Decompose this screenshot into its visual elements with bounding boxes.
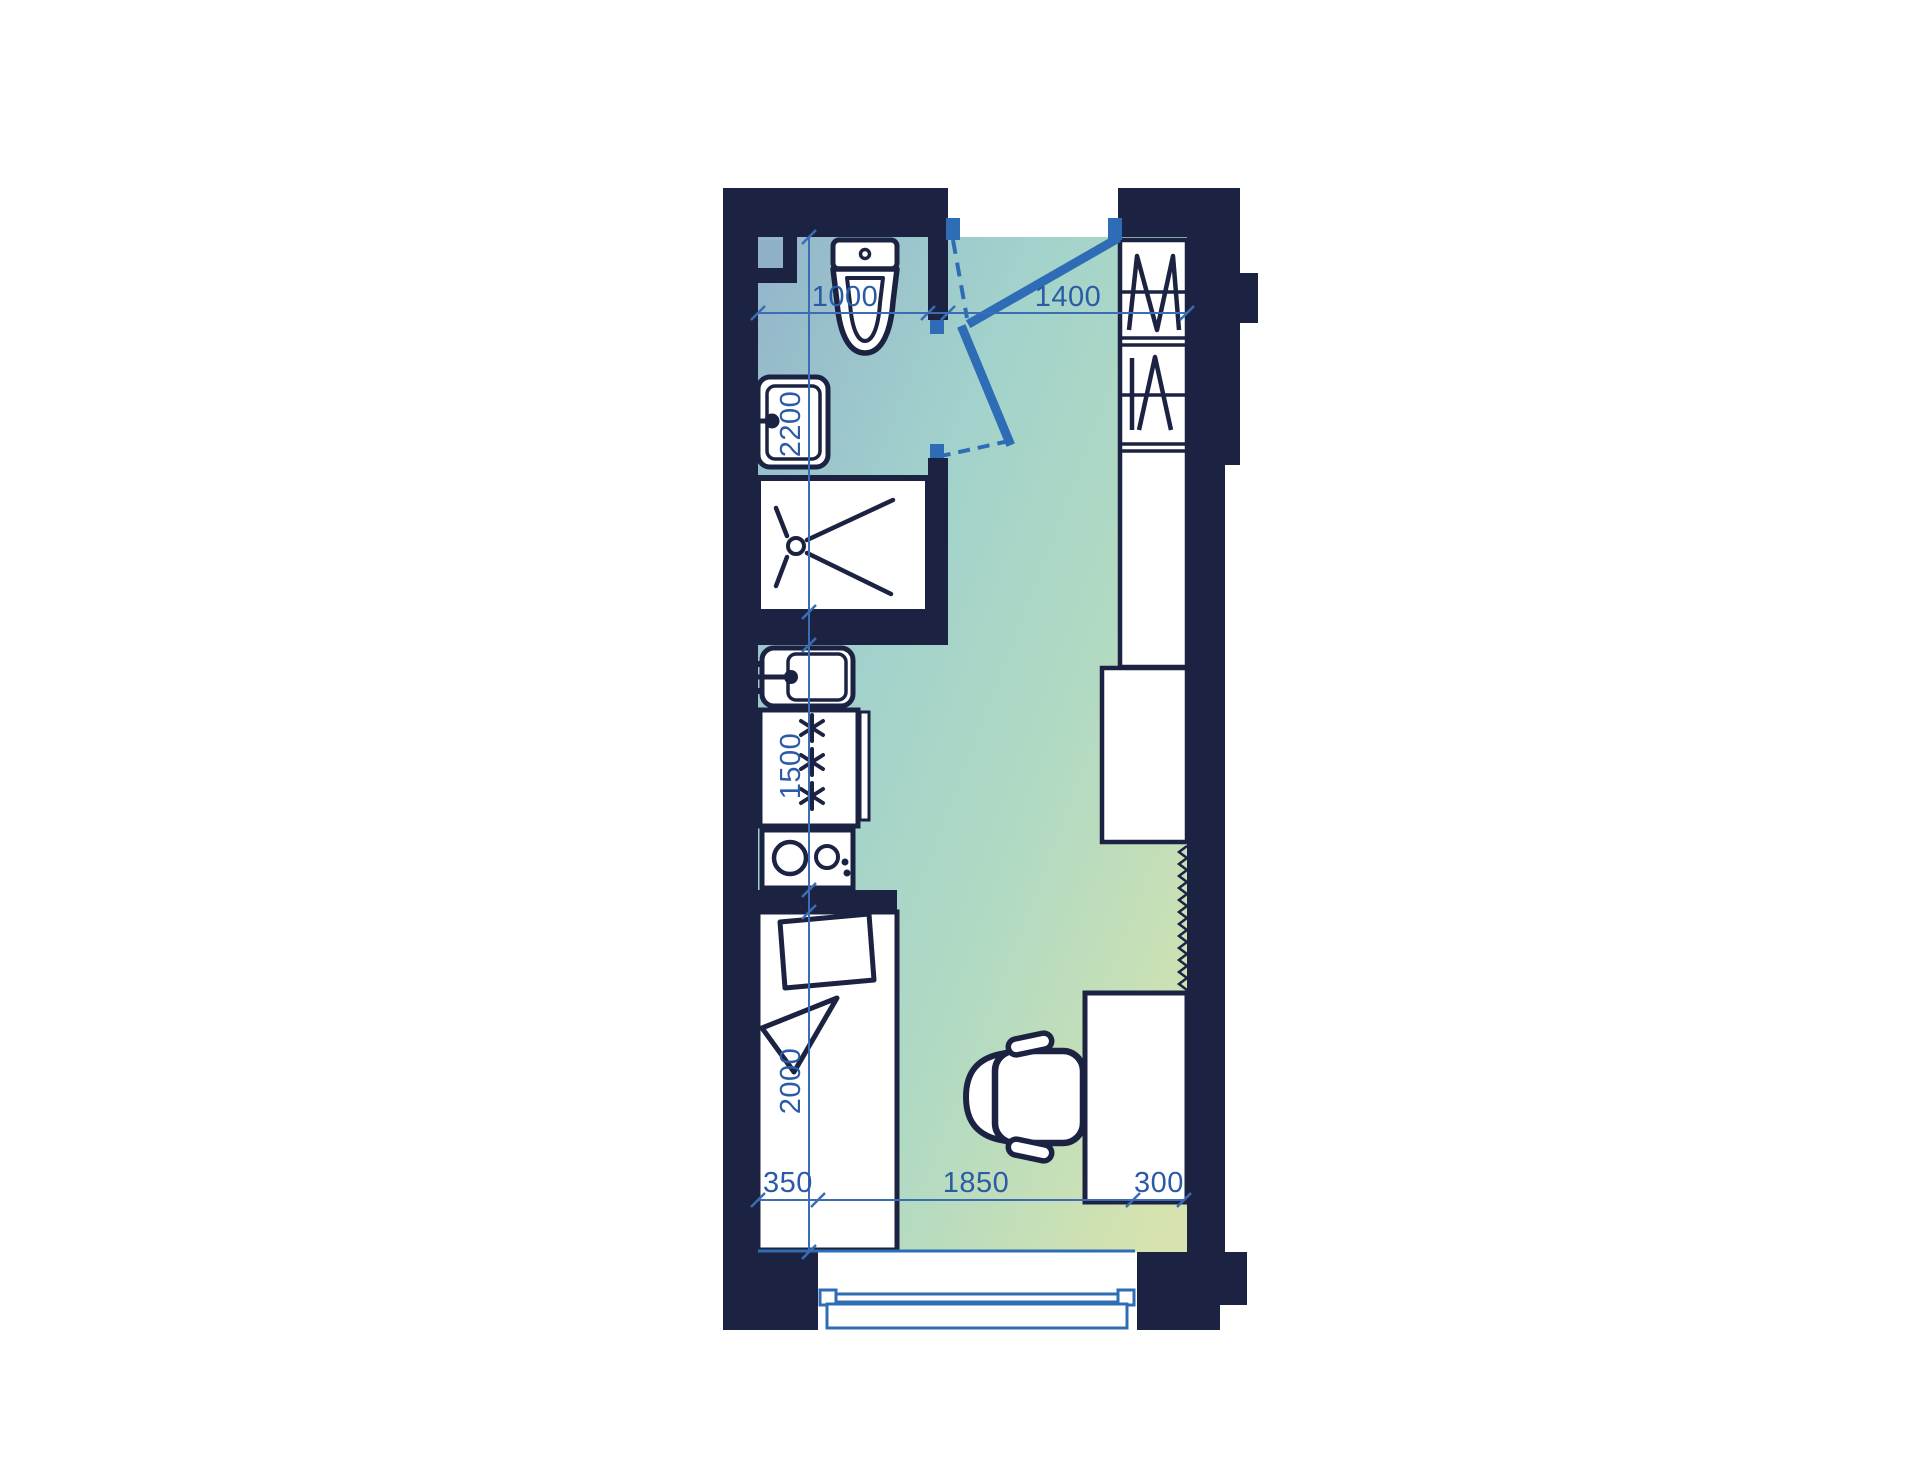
dim-label-2200: 2200 bbox=[775, 391, 807, 458]
shower-tray bbox=[758, 478, 928, 612]
right-wall-upper bbox=[1187, 237, 1240, 465]
dim-label-300: 300 bbox=[1134, 1167, 1184, 1199]
burner-small bbox=[816, 846, 838, 868]
dim-label-1400: 1400 bbox=[1035, 281, 1102, 313]
tall-cabinet bbox=[1102, 668, 1187, 842]
bottom-wall-left-block bbox=[723, 1252, 818, 1330]
refrigerator-door bbox=[860, 712, 869, 820]
door-jamb-post bbox=[946, 218, 960, 240]
burner-large bbox=[774, 842, 806, 874]
chair-seat bbox=[995, 1051, 1083, 1143]
bathroom-wall-upper bbox=[928, 237, 948, 320]
stove bbox=[762, 830, 853, 888]
top-wall-right bbox=[1118, 188, 1240, 237]
stove-knob bbox=[842, 859, 849, 866]
toilet-flush-button bbox=[861, 250, 870, 259]
ventilation-shaft bbox=[758, 240, 783, 268]
shaft-pier-horizontal bbox=[758, 268, 797, 283]
wardrobe-hanging-sections bbox=[1120, 240, 1187, 667]
right-wall-pier bbox=[1240, 273, 1258, 323]
dim-label-2000: 2000 bbox=[775, 1048, 807, 1115]
left-wall bbox=[723, 188, 758, 1252]
pillow bbox=[780, 914, 874, 988]
door-jamb-post bbox=[930, 320, 944, 334]
dim-label-1000: 1000 bbox=[812, 281, 879, 313]
bottom-wall-right-block bbox=[1137, 1252, 1220, 1330]
floor-plan-drawing: 1000 1400 2200 1500 2000 350 1850 300 bbox=[0, 0, 1920, 1483]
shower-tray-box bbox=[758, 478, 928, 612]
dim-label-1500: 1500 bbox=[775, 733, 807, 800]
bottom-wall-right-step bbox=[1220, 1252, 1247, 1305]
dim-label-350: 350 bbox=[763, 1167, 813, 1199]
dim-label-1850: 1850 bbox=[943, 1167, 1010, 1199]
bathroom-bottom-wall bbox=[723, 612, 948, 645]
window-sill bbox=[827, 1304, 1127, 1328]
stove-knob bbox=[844, 870, 851, 877]
kitchen-sink bbox=[748, 648, 853, 706]
right-wall-lower bbox=[1187, 465, 1225, 1252]
shower-drain bbox=[788, 538, 804, 554]
floor-plan-page: 1000 1400 2200 1500 2000 350 1850 300 bbox=[0, 0, 1920, 1483]
